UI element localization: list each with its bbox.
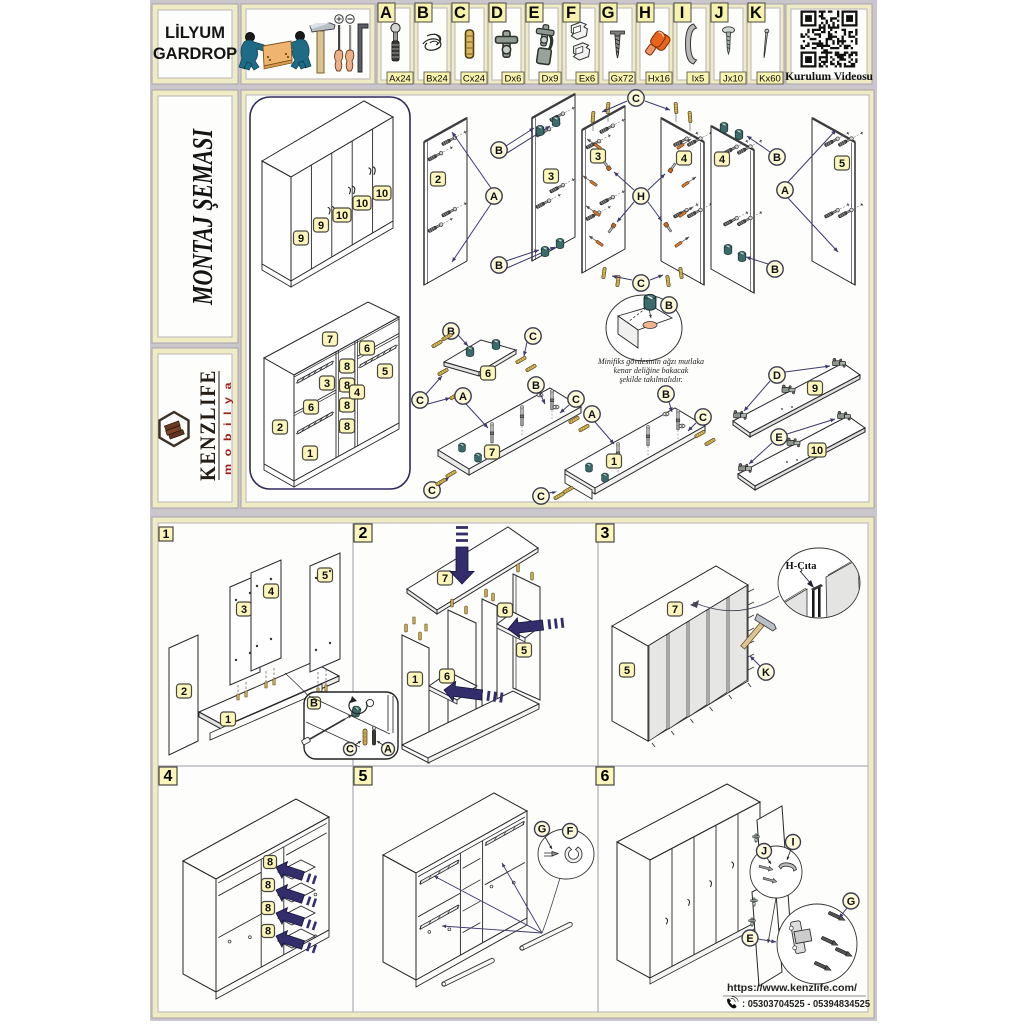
svg-text:şekilde takılmalıdır.: şekilde takılmalıdır. bbox=[619, 375, 682, 384]
svg-text:10: 10 bbox=[356, 198, 368, 210]
svg-text:B: B bbox=[495, 260, 503, 272]
svg-text:C: C bbox=[346, 743, 354, 755]
svg-text:3: 3 bbox=[595, 151, 601, 163]
svg-text:Ix5: Ix5 bbox=[692, 74, 705, 85]
svg-text:5: 5 bbox=[521, 645, 527, 657]
svg-text:I: I bbox=[680, 4, 685, 22]
svg-text:G: G bbox=[602, 4, 615, 22]
svg-text:C: C bbox=[529, 331, 537, 343]
svg-text:E: E bbox=[775, 432, 782, 444]
svg-text:1: 1 bbox=[307, 448, 313, 460]
svg-text:4: 4 bbox=[354, 387, 361, 399]
svg-text:LİLYUM: LİLYUM bbox=[165, 24, 225, 42]
svg-text:C: C bbox=[699, 412, 707, 424]
svg-text:8: 8 bbox=[267, 857, 273, 869]
svg-text:C: C bbox=[428, 485, 436, 497]
svg-text:KENZLIFE: KENZLIFE bbox=[195, 369, 220, 481]
svg-text:B: B bbox=[532, 380, 540, 392]
svg-text:3: 3 bbox=[548, 171, 554, 183]
svg-text:A: A bbox=[490, 191, 498, 203]
svg-text:6: 6 bbox=[444, 671, 450, 683]
svg-text:H: H bbox=[637, 191, 645, 203]
svg-text:kenar deliğine bakacak: kenar deliğine bakacak bbox=[614, 366, 689, 375]
svg-text:Dx9: Dx9 bbox=[542, 74, 559, 85]
svg-text:6: 6 bbox=[601, 768, 610, 785]
svg-text:K: K bbox=[762, 667, 770, 679]
svg-text:Minifiks gövdesinin ağzı mutla: Minifiks gövdesinin ağzı mutlaka bbox=[597, 357, 704, 366]
svg-text:10: 10 bbox=[811, 445, 823, 457]
svg-text:2: 2 bbox=[435, 174, 441, 186]
svg-text:J: J bbox=[761, 846, 767, 858]
svg-text:Bx24: Bx24 bbox=[426, 74, 448, 85]
svg-text:3: 3 bbox=[324, 378, 330, 390]
svg-text:10: 10 bbox=[336, 210, 348, 222]
svg-text:7: 7 bbox=[327, 334, 333, 346]
svg-text:Kurulum Videosu: Kurulum Videosu bbox=[785, 71, 873, 83]
svg-text:C: C bbox=[572, 394, 580, 406]
svg-text:5: 5 bbox=[382, 366, 388, 378]
svg-text:Ax24: Ax24 bbox=[389, 74, 411, 85]
svg-text:A: A bbox=[384, 743, 392, 755]
svg-text:H-Çıta: H-Çıta bbox=[786, 561, 818, 572]
svg-text:8: 8 bbox=[344, 400, 350, 412]
svg-text:7: 7 bbox=[442, 573, 448, 585]
svg-text:7: 7 bbox=[672, 604, 678, 616]
svg-text:5: 5 bbox=[624, 665, 630, 677]
svg-text:A: A bbox=[380, 4, 392, 22]
svg-text:9: 9 bbox=[812, 383, 818, 395]
svg-text:B: B bbox=[771, 264, 779, 276]
svg-text:J: J bbox=[714, 4, 723, 22]
svg-text:: 05303704525 - 05394834525: : 05303704525 - 05394834525 bbox=[742, 998, 870, 1010]
svg-text:Kx60: Kx60 bbox=[759, 74, 781, 85]
svg-text:B: B bbox=[665, 300, 673, 312]
svg-text:8: 8 bbox=[265, 926, 271, 938]
svg-text:H: H bbox=[639, 4, 651, 22]
svg-text:B: B bbox=[773, 152, 781, 164]
svg-text:6: 6 bbox=[308, 402, 314, 414]
svg-text:5: 5 bbox=[322, 570, 328, 582]
svg-text:F: F bbox=[566, 4, 576, 22]
svg-text:D: D bbox=[773, 370, 781, 382]
svg-text:1: 1 bbox=[412, 674, 418, 686]
svg-text:8: 8 bbox=[265, 880, 271, 892]
svg-text:8: 8 bbox=[265, 903, 271, 915]
svg-text:Dx6: Dx6 bbox=[505, 74, 522, 85]
svg-text:4: 4 bbox=[719, 154, 726, 166]
svg-text:G: G bbox=[538, 824, 547, 836]
svg-text:C: C bbox=[416, 395, 424, 407]
svg-text:A: A bbox=[781, 185, 789, 197]
svg-text:1: 1 bbox=[163, 527, 170, 541]
svg-text:9: 9 bbox=[318, 220, 324, 232]
svg-text:8: 8 bbox=[344, 421, 350, 433]
svg-text:C: C bbox=[632, 93, 640, 105]
svg-text:3: 3 bbox=[241, 604, 247, 616]
svg-text:6: 6 bbox=[502, 605, 508, 617]
svg-text:I: I bbox=[791, 837, 794, 849]
svg-text:8: 8 bbox=[344, 361, 350, 373]
svg-text:3: 3 bbox=[601, 525, 610, 542]
svg-text:A: A bbox=[588, 409, 596, 421]
svg-text:B: B bbox=[495, 145, 503, 157]
svg-text:6: 6 bbox=[364, 343, 370, 355]
svg-text:2: 2 bbox=[359, 525, 368, 542]
svg-text:Jx10: Jx10 bbox=[723, 74, 743, 85]
svg-text:Gx72: Gx72 bbox=[611, 74, 634, 85]
svg-text:5: 5 bbox=[839, 158, 845, 170]
svg-text:B: B bbox=[662, 389, 670, 401]
svg-text:B: B bbox=[417, 4, 429, 22]
svg-text:GARDROP: GARDROP bbox=[153, 45, 237, 63]
svg-text:C: C bbox=[537, 491, 545, 503]
svg-text:A: A bbox=[459, 391, 467, 403]
svg-text:10: 10 bbox=[376, 188, 388, 200]
svg-text:G: G bbox=[847, 896, 856, 908]
svg-text:6: 6 bbox=[485, 368, 491, 380]
svg-text:MONTAJ ŞEMASI: MONTAJ ŞEMASI bbox=[188, 128, 219, 306]
svg-text:4: 4 bbox=[268, 586, 275, 598]
svg-text:1: 1 bbox=[225, 714, 231, 726]
svg-text:Hx16: Hx16 bbox=[648, 74, 670, 85]
svg-text:Cx24: Cx24 bbox=[463, 74, 485, 85]
svg-text:7: 7 bbox=[489, 447, 495, 459]
svg-text:2: 2 bbox=[181, 686, 187, 698]
svg-text:https://www.kenzlife.com/: https://www.kenzlife.com/ bbox=[727, 982, 857, 994]
svg-text:Ex6: Ex6 bbox=[579, 74, 595, 85]
svg-text:4: 4 bbox=[681, 153, 688, 165]
svg-text:E: E bbox=[746, 933, 753, 945]
svg-text:1: 1 bbox=[611, 456, 617, 468]
svg-text:C: C bbox=[637, 278, 645, 290]
svg-text:4: 4 bbox=[164, 768, 173, 785]
svg-text:E: E bbox=[528, 4, 539, 22]
svg-text:D: D bbox=[491, 4, 503, 22]
svg-text:9: 9 bbox=[298, 233, 304, 245]
svg-text:C: C bbox=[454, 4, 466, 22]
svg-text:2: 2 bbox=[277, 422, 283, 434]
svg-text:mobilya: mobilya bbox=[223, 375, 234, 475]
svg-text:5: 5 bbox=[359, 768, 368, 785]
svg-text:F: F bbox=[567, 826, 574, 838]
svg-text:K: K bbox=[750, 4, 762, 22]
